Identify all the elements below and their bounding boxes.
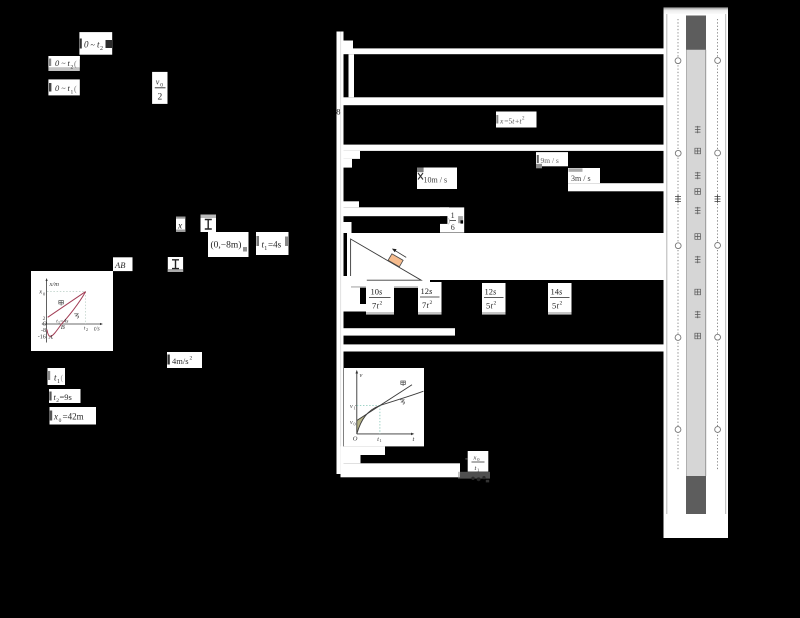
svg-text:12: 12 (485, 287, 494, 297)
svg-text:=9s: =9s (60, 392, 72, 402)
svg-text:0: 0 (84, 40, 89, 50)
svg-text:0: 0 (354, 421, 356, 426)
svg-text:10m / s: 10m / s (424, 175, 448, 184)
svg-text:2: 2 (100, 46, 103, 52)
svg-text:12: 12 (421, 286, 430, 296)
svg-text:t/s: t/s (94, 326, 100, 332)
svg-text:2: 2 (190, 356, 193, 362)
svg-text:2: 2 (380, 301, 383, 307)
svg-text:A: A (48, 334, 53, 341)
svg-text:2: 2 (494, 301, 497, 307)
svg-text:1: 1 (477, 467, 479, 472)
svg-text:v: v (360, 372, 363, 379)
svg-text:x: x (53, 412, 58, 422)
svg-text:1: 1 (451, 211, 455, 220)
svg-text:~: ~ (62, 84, 66, 93)
svg-text:(: ( (74, 84, 77, 93)
svg-text:1: 1 (264, 246, 267, 252)
svg-text:4m/s: 4m/s (172, 356, 189, 366)
svg-text:x: x (499, 117, 504, 126)
svg-text:1: 1 (380, 438, 382, 443)
svg-text:9m / s: 9m / s (541, 156, 559, 165)
svg-text:=4s: =4s (268, 240, 282, 250)
svg-text:B: B (61, 324, 65, 331)
svg-text:x/m: x/m (49, 281, 60, 288)
svg-text:v: v (156, 78, 160, 87)
svg-text:2: 2 (560, 301, 563, 307)
svg-text:6: 6 (451, 223, 455, 232)
svg-text:x: x (177, 221, 183, 231)
svg-text:(0,−8m): (0,−8m) (211, 240, 242, 251)
svg-text:2: 2 (158, 93, 163, 103)
svg-text:=42m: =42m (63, 412, 84, 422)
svg-text:-8: -8 (41, 328, 46, 334)
svg-text:x: x (473, 455, 477, 462)
svg-text:3m / s: 3m / s (571, 174, 591, 183)
svg-text:t: t (413, 436, 415, 443)
svg-text:10: 10 (371, 287, 380, 297)
svg-text:0: 0 (59, 418, 62, 424)
svg-text:O: O (42, 321, 47, 327)
svg-text:2: 2 (430, 300, 433, 306)
svg-text:8: 8 (336, 107, 340, 117)
svg-text:~: ~ (62, 59, 66, 68)
svg-text:O: O (353, 435, 358, 442)
svg-text:-16: -16 (38, 334, 46, 340)
svg-text:~: ~ (91, 41, 96, 50)
svg-text:AB: AB (114, 260, 125, 270)
svg-text:(: ( (61, 374, 64, 383)
svg-text:x: x (38, 289, 42, 296)
svg-text:1: 1 (354, 405, 356, 410)
svg-text:(: ( (74, 59, 77, 68)
svg-text:2: 2 (86, 327, 88, 332)
svg-text:=5: =5 (504, 117, 512, 126)
